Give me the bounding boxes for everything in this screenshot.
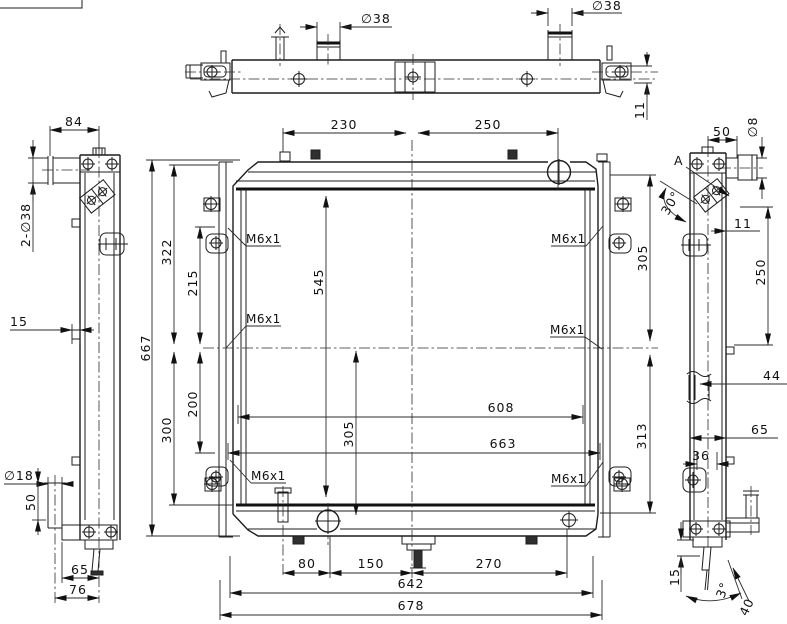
front-view-foot-left [293, 536, 304, 544]
front-view-dimensions: 230 250 667 322 300 215 200 545 305 608 … [138, 117, 656, 620]
dim-right-36: 36 [692, 448, 710, 463]
dim-front-215: 215 [185, 270, 200, 297]
dim-front-667: 667 [138, 335, 153, 362]
thread-label: M6x1 [246, 312, 281, 326]
dim-front-322: 322 [159, 239, 174, 266]
dim-front-545: 545 [311, 269, 326, 296]
dim-right-250: 250 [753, 259, 768, 286]
dim-front-642: 642 [398, 576, 425, 591]
dim-front-305-center: 305 [341, 421, 356, 448]
right-side-view: 50 ∅8 A 30° 11 250 44 65 36 [658, 117, 787, 618]
front-view-right-bracket [598, 162, 631, 537]
dim-front-150: 150 [358, 556, 385, 571]
dim-front-300: 300 [159, 417, 174, 444]
dim-front-270: 270 [476, 556, 503, 571]
dim-front-313: 313 [634, 423, 649, 450]
dim-left-outlet-dia: ∅18 [4, 468, 34, 483]
dim-front-678: 678 [398, 598, 425, 613]
front-view-tank-outline [233, 162, 598, 536]
dim-left-foot-outer: 76 [69, 582, 87, 597]
sheet-frame-fragment [0, 0, 82, 8]
front-view-top-clip-left [280, 152, 290, 161]
front-view-drain [315, 508, 341, 534]
left-view-outlet-pipe [44, 475, 66, 603]
right-view-mid-boss [681, 234, 711, 256]
dim-right-gap: 11 [734, 216, 752, 231]
front-view-top-bolt-right [508, 150, 517, 159]
right-view-tab-upper [726, 347, 734, 354]
thread-label: M6x1 [551, 472, 586, 486]
dim-front-305-right: 305 [635, 245, 650, 272]
dim-top-bracket: 11 [632, 101, 647, 119]
front-view-center-mount [402, 536, 435, 568]
front-view-top-bolt-left [311, 150, 320, 159]
left-view-mid-boss [98, 233, 128, 255]
left-side-view: 84 2-∅38 15 ∅18 50 65 76 [4, 114, 128, 603]
dim-front-230: 230 [331, 117, 358, 132]
top-view-right-bracket [592, 46, 658, 97]
right-view-tab-lower [726, 457, 734, 464]
thread-label: M6x1 [550, 323, 585, 337]
thread-label: M6x1 [251, 469, 286, 483]
dim-right-44: 44 [763, 368, 781, 383]
thread-label: M6x1 [246, 232, 281, 246]
dim-right-tilt: 3° [713, 580, 733, 600]
radiator-engineering-drawing: ∅38 ∅38 11 [0, 0, 787, 624]
dim-right-pipe-dia: ∅8 [745, 117, 760, 138]
drawing-canvas: ∅38 ∅38 11 [0, 0, 787, 624]
dim-front-250: 250 [475, 117, 502, 132]
dim-right-stud: 40 [736, 596, 757, 619]
dim-left-foot-inner: 65 [71, 562, 89, 577]
dim-left-outlet-len: 50 [23, 493, 38, 511]
dim-left-pipe-len: 84 [65, 114, 83, 129]
dim-right-15: 15 [667, 568, 682, 586]
top-view-inlet-neck [317, 34, 340, 66]
dim-right-50: 50 [713, 124, 731, 139]
dim-front-663: 663 [490, 436, 517, 451]
dim-right-angle: 30° [658, 188, 684, 217]
dim-left-tab: 15 [10, 314, 28, 329]
front-view: M6x1 M6x1 M6x1 M6x1 M6x1 M6x1 230 250 66… [138, 117, 658, 620]
dim-front-608: 608 [488, 400, 515, 415]
front-view-thread-labels: M6x1 M6x1 M6x1 M6x1 M6x1 M6x1 [226, 226, 603, 486]
front-view-top-clip-right [597, 154, 607, 161]
dim-left-pipes: 2-∅38 [18, 203, 33, 247]
front-view-bottom-hole [560, 511, 578, 529]
left-view-top-bolts [81, 148, 119, 171]
front-view-left-bracket [203, 162, 233, 537]
dim-front-80: 80 [298, 556, 316, 571]
right-view-bottom-pipe [726, 486, 759, 535]
dim-right-65: 65 [751, 422, 769, 437]
left-view-tab-upper [72, 219, 80, 227]
view-label-a: A [674, 153, 684, 168]
dim-front-200: 200 [185, 391, 200, 418]
dim-top-pipe1: ∅38 [361, 11, 391, 26]
left-view-tab-lower [72, 457, 80, 465]
thread-label: M6x1 [551, 232, 586, 246]
top-view: ∅38 ∅38 11 [185, 0, 658, 120]
dim-top-pipe2: ∅38 [592, 0, 622, 13]
front-view-foot-right [526, 536, 537, 544]
left-view-inlet-pipe [42, 156, 90, 185]
left-view-tab-mid [72, 330, 80, 339]
top-view-left-bracket [185, 51, 243, 97]
